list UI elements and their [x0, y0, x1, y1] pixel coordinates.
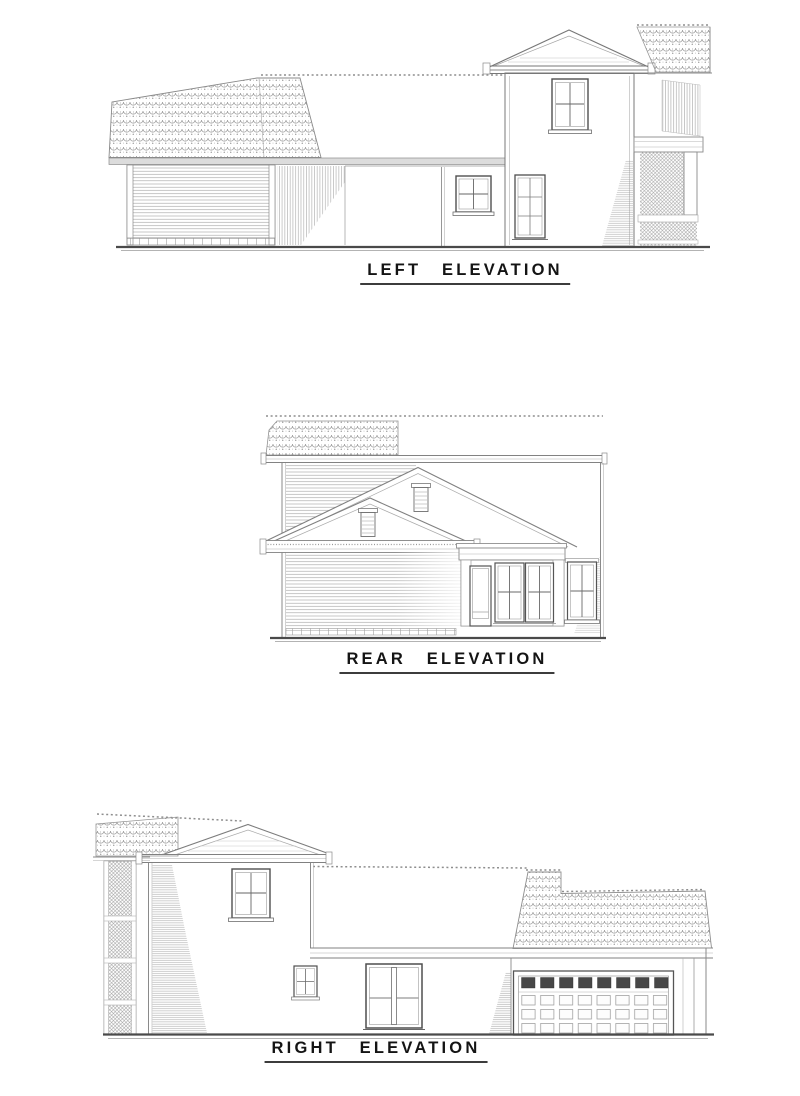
wall-shading: [153, 865, 208, 1033]
porch-roof-shingles: [96, 817, 178, 856]
wall-shading: [489, 972, 512, 1034]
wall-shading: [277, 166, 345, 245]
garage-roof-shingles: [513, 872, 712, 949]
porch-post: [104, 861, 136, 1034]
sunroom-window: [526, 563, 554, 622]
porch-lattice: [640, 152, 684, 246]
right-small-window: [292, 966, 320, 1000]
porch-beam: [634, 137, 703, 152]
rear-elevation-label: REAR ELEVATION: [339, 650, 554, 674]
rear-sunroom: [457, 544, 567, 627]
porch-screen: [662, 80, 700, 136]
left-wing-siding-wall: [127, 165, 275, 238]
rear-roof-vent: [412, 484, 431, 512]
left-eave-band: [109, 158, 505, 165]
front-roof-vent: [359, 509, 378, 537]
garage-door: [514, 971, 674, 1035]
sunroom-window: [495, 563, 524, 622]
left-tower-window: [549, 79, 592, 134]
rear-elevation-drawing: [260, 416, 607, 642]
rear-eave-band: [261, 541, 480, 553]
rear-roof-shingles: [266, 421, 398, 455]
left-middle-window: [453, 176, 494, 216]
blueprint-sheet: LEFT ELEVATION REAR ELEVATION RIGHT ELEV…: [0, 0, 800, 1096]
left-wing-skirt: [127, 238, 275, 245]
left-tower-door: [512, 175, 548, 240]
right-elevation-label: RIGHT ELEVATION: [265, 1039, 488, 1063]
porch-post: [684, 152, 697, 215]
ridge-dotted-line: [313, 867, 528, 869]
right-tower-window: [229, 869, 274, 922]
right-elevation-drawing: [93, 814, 714, 1039]
left-elevation-drawing: [109, 25, 712, 251]
elevation-drawings: [0, 0, 800, 1096]
left-tower-gable: [483, 30, 655, 74]
right-large-window: [363, 964, 425, 1030]
rear-right-window: [565, 559, 600, 624]
sunroom-door: [470, 566, 491, 626]
garage-door-panels: [519, 993, 669, 1035]
left-wing-roof: [109, 78, 321, 158]
left-elevation-label: LEFT ELEVATION: [360, 261, 570, 285]
